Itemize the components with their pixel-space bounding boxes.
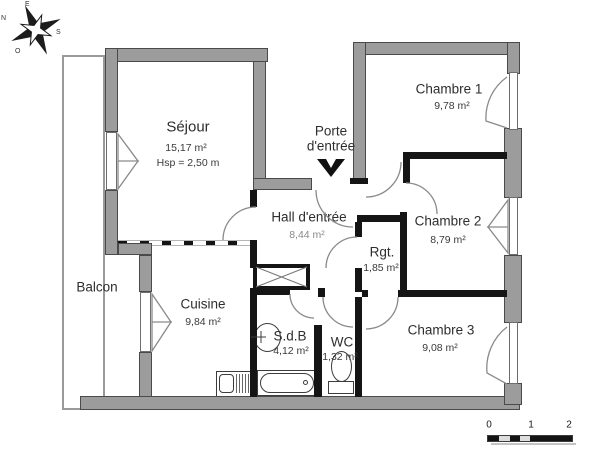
window-casement-cuisine <box>152 294 171 351</box>
room-area-hall: 8,44 m² <box>289 229 325 241</box>
door-arc-sdb <box>290 294 314 318</box>
balcony-outline <box>62 55 105 410</box>
door-arc-chambre3 <box>366 297 398 329</box>
wall-right-pier2 <box>504 255 522 323</box>
compass-letter-o: O <box>15 48 21 55</box>
wall-chambre1-chambre2 <box>403 152 507 159</box>
kitchen-sink-bowl <box>219 374 234 393</box>
window-arc-chambre3 <box>487 327 507 384</box>
wall-rgt-top <box>357 215 403 222</box>
scale-seg-4 <box>520 436 530 441</box>
window-arc-chambre1 <box>486 77 507 128</box>
wall-rgt-left-lower <box>355 268 362 292</box>
wall-sejour-top <box>105 48 268 62</box>
scale-bar-shadow <box>491 443 576 445</box>
closet-box <box>253 264 310 290</box>
door-arc-sejour <box>223 207 256 240</box>
scale-seg-2 <box>499 436 510 441</box>
room-area-wc: 1,32 m² <box>322 351 358 363</box>
door-arc-chambre1 <box>366 162 401 197</box>
kitchen-sink-drainer <box>236 374 250 393</box>
entrance-label-line2: d'entrée <box>307 139 355 154</box>
room-area-rgt: 1,85 m² <box>363 262 399 274</box>
wall-sejour-right <box>253 61 266 190</box>
room-label-sdb: S.d.B <box>273 329 306 344</box>
compass-letter-s: S <box>56 29 61 36</box>
entrance-label-line1: Porte <box>315 124 347 139</box>
scale-seg-1 <box>488 436 499 441</box>
room-label-wc: WC <box>331 335 354 350</box>
scale-label-2: 2 <box>566 420 572 431</box>
room-label-hall: Hall d'entrée <box>271 210 346 225</box>
wall-right-pier3 <box>504 383 522 405</box>
wall-top-right <box>355 42 520 55</box>
wall-chambre1-left-cap <box>350 178 368 184</box>
wall-sejour-left-upper <box>105 48 118 132</box>
door-arc-rgt <box>326 237 357 268</box>
floor-plan: Séjour 15,17 m² Hsp = 2,50 m Porte d'ent… <box>0 0 600 450</box>
scale-seg-3 <box>510 436 520 441</box>
wall-sdb-top-stub <box>318 288 325 297</box>
room-area-sdb: 4,12 m² <box>273 345 309 357</box>
room-area-sejour: 15,17 m² <box>165 142 206 154</box>
entrance-arrow-icon <box>317 159 345 177</box>
wall-rgt-right <box>400 212 407 297</box>
wall-cuisine-step <box>118 243 152 255</box>
room-area-chambre2: 8,79 m² <box>430 234 466 246</box>
wall-bottom <box>80 396 520 410</box>
wall-sejour-left-lower <box>105 190 118 255</box>
room-label-chambre1: Chambre 1 <box>416 82 483 97</box>
room-label-balcon: Balcon <box>76 280 117 295</box>
room-area-cuisine: 9,84 m² <box>185 316 221 328</box>
wall-sdb-wc <box>314 325 322 397</box>
window-chambre1 <box>509 72 518 130</box>
wall-cuisine-left-lower <box>139 352 152 400</box>
room-label-chambre3: Chambre 3 <box>408 323 475 338</box>
window-chambre3 <box>509 322 518 384</box>
wall-chambre3-top-left <box>362 290 368 297</box>
compass-letter-n: N <box>1 15 6 22</box>
window-cuisine-balcon <box>140 292 151 352</box>
wall-chambre2-left-stub <box>403 159 410 183</box>
room-label-rgt: Rgt. <box>370 245 395 260</box>
wall-chambre1-left <box>353 42 366 180</box>
wall-hall-sdb-upper <box>250 240 257 268</box>
wall-rgt-left-upper <box>355 222 362 237</box>
scale-label-0: 0 <box>486 420 492 431</box>
wall-cuisine-left-upper <box>139 255 152 292</box>
wall-wc-chambre3 <box>355 297 362 397</box>
wall-sejour-hall-stub <box>250 190 257 207</box>
wall-chambre3-top <box>398 290 507 297</box>
room-area-chambre1: 9,78 m² <box>434 100 470 112</box>
room-hsp-sejour: Hsp = 2,50 m <box>157 157 220 169</box>
window-casement-chambre2 <box>488 200 508 253</box>
scale-label-1: 1 <box>528 420 534 431</box>
wall-sdb-left <box>250 290 257 397</box>
door-arc-chambre2 <box>406 183 437 214</box>
window-casement-sejour <box>118 134 138 189</box>
wall-right-top <box>507 42 520 74</box>
door-arc-wc <box>323 297 353 327</box>
room-label-cuisine: Cuisine <box>180 297 225 312</box>
room-label-sejour: Séjour <box>166 119 209 136</box>
bathtub-drain <box>303 380 308 385</box>
wall-right-pier1 <box>504 128 522 198</box>
scale-seg-5 <box>530 436 572 441</box>
window-chambre2 <box>509 197 518 255</box>
scale-bar <box>487 435 573 442</box>
room-area-chambre3: 9,08 m² <box>422 342 458 354</box>
wall-hall-top <box>253 178 312 190</box>
toilet-tank <box>328 381 354 394</box>
room-label-chambre2: Chambre 2 <box>415 214 482 229</box>
window-sejour-balcon <box>106 132 117 190</box>
compass-rose-icon <box>0 0 71 66</box>
compass-letter-e: E <box>25 1 30 8</box>
